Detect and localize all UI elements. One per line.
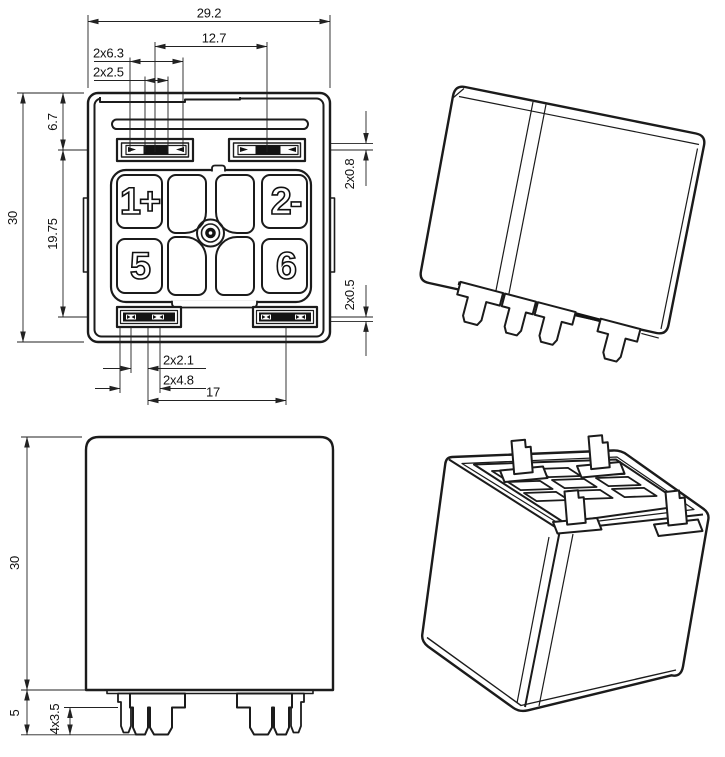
dim-bottom-terminal-pitch: 17 (206, 385, 220, 400)
pad-panel: 1+ 2- 5 6 (111, 166, 311, 308)
front-pins-right (237, 694, 292, 735)
pad-label-1plus: 1+ (120, 181, 160, 223)
panel-bottom-tab (172, 301, 257, 308)
front-pin-group-left (118, 694, 185, 735)
panel-top-tab (212, 166, 225, 172)
dim-tab-large: 2x4.8 (163, 373, 194, 388)
front-pins-left (130, 694, 185, 735)
dim-body-height: 30 (7, 556, 22, 570)
dim-terminal-pitch: 12.7 (202, 31, 227, 46)
relay-dimension-drawing: 1+ 2- 5 6 29.2 (0, 0, 725, 757)
front-view: 30 5 4x3.5 (7, 437, 333, 735)
front-pin-group-right (237, 694, 304, 735)
technical-drawing-canvas: 1+ 2- 5 6 29.2 (0, 0, 725, 757)
dim-slot-opening: 2x2.5 (93, 65, 124, 80)
pad-label-6: 6 (276, 246, 296, 288)
dim-pin-length: 4x3.5 (47, 704, 62, 735)
center-boss (197, 220, 224, 247)
bottom-pin-b-blade (589, 435, 610, 469)
dim-row-pitch: 19.75 (45, 218, 60, 250)
dim-overall-height: 30 (5, 211, 20, 225)
front-body (86, 437, 333, 690)
terminal-slot-bottom-left (117, 307, 181, 327)
dim-overall-width: 29.2 (197, 6, 222, 21)
dim-blade-top: 2x0.8 (342, 159, 357, 190)
top-view: 1+ 2- 5 6 29.2 (5, 6, 373, 406)
terminal-slot-bottom-right (253, 307, 317, 327)
dim-slot-width: 2x6.3 (93, 46, 124, 61)
dim-tab-small: 2x2.1 (163, 353, 194, 368)
dim-standoff-height: 5 (7, 709, 22, 716)
pad-label-2minus: 2- (271, 181, 302, 223)
iso-view-bottom (422, 435, 708, 711)
dim-blade-bottom: 2x0.5 (342, 280, 357, 311)
pad-label-5: 5 (130, 246, 151, 288)
bottom-pin-a-blade (512, 440, 533, 474)
dim-top-offset: 6.7 (45, 113, 60, 130)
iso-view-top (421, 87, 705, 371)
